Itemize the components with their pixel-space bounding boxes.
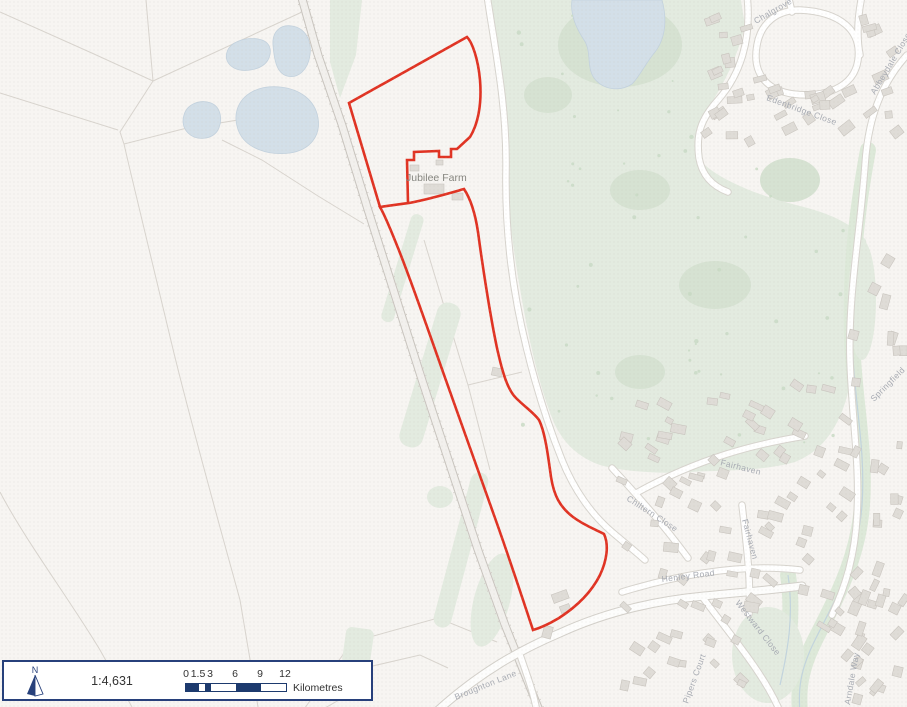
north-arrow: N bbox=[22, 664, 48, 698]
scale-unit-label: Kilometres bbox=[293, 682, 343, 694]
street-label-springfield: Springfield bbox=[868, 365, 907, 404]
scale-tick: 9 bbox=[257, 668, 263, 680]
north-needle-left bbox=[27, 675, 35, 696]
scale-tick: 6 bbox=[232, 668, 238, 680]
street-label-henley: Henley Road bbox=[661, 568, 715, 584]
north-needle-right bbox=[35, 675, 43, 696]
scale-bar: 0 1.5 3 6 9 12 Kilometres bbox=[185, 665, 355, 699]
scale-info-box: N 1:4,631 0 1.5 3 6 9 12 Kilometres bbox=[2, 660, 373, 701]
scale-tick: 12 bbox=[279, 668, 291, 680]
place-label-jubilee-farm: Jubilee Farm bbox=[406, 172, 467, 184]
scale-tick: 1.5 bbox=[191, 668, 206, 680]
scale-tick: 3 bbox=[207, 668, 213, 680]
scale-tick: 0 bbox=[183, 668, 189, 680]
north-label: N bbox=[32, 665, 39, 675]
map-canvas: Jubilee Farm Edenbridge Close Abbeydale … bbox=[0, 0, 907, 707]
map-export-page: { "map": { "place_label": "Jubilee Farm"… bbox=[0, 0, 907, 707]
street-label-chiltern: Chiltern Close bbox=[625, 493, 680, 534]
street-label-pipers-court: Pipers Court bbox=[680, 652, 707, 705]
scale-bar-segments bbox=[185, 683, 287, 692]
scale-ratio: 1:4,631 bbox=[62, 674, 162, 688]
